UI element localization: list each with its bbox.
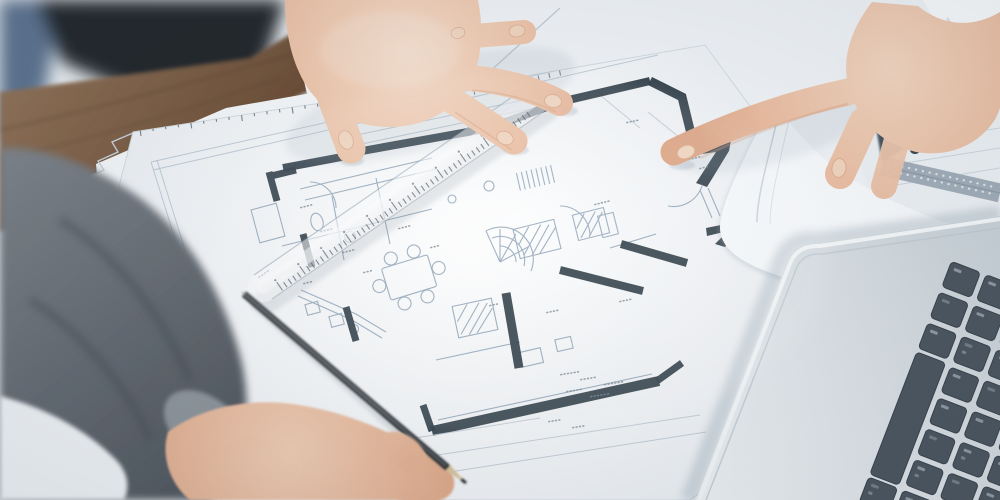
vignette <box>0 0 1000 500</box>
architects-blueprint-photo: Wooden desk surface Stack of white drawi… <box>0 0 1000 500</box>
photo-stage: Close-up overhead photo of an architects… <box>0 0 1000 500</box>
